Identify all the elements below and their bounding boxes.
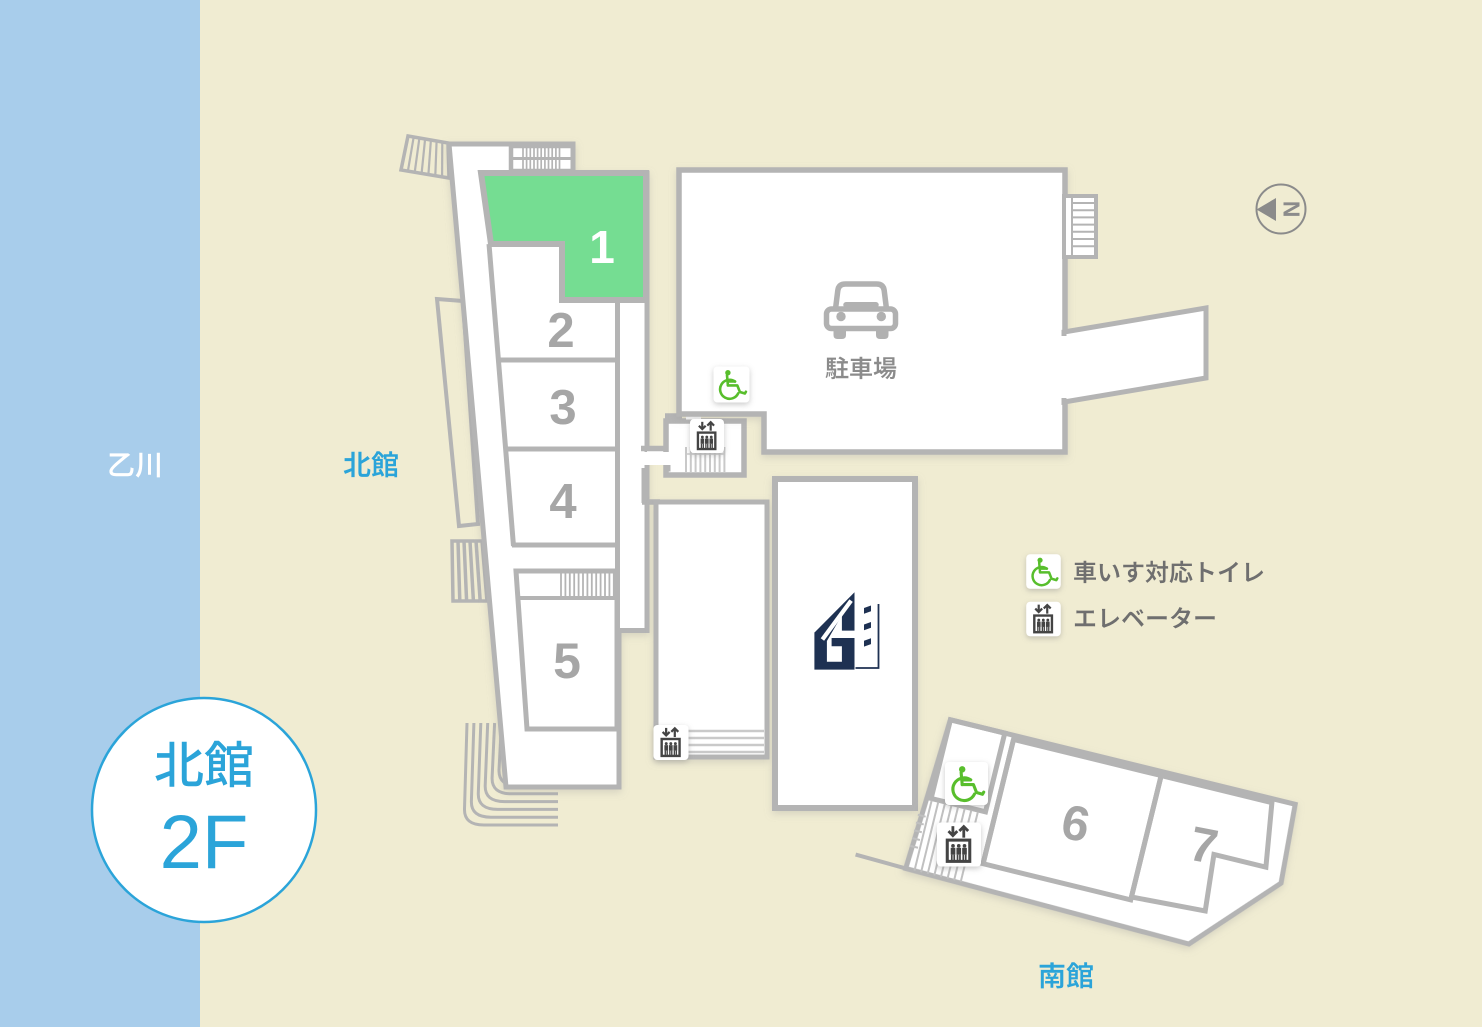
svg-text:1: 1: [589, 221, 615, 273]
svg-text:2F: 2F: [160, 800, 249, 885]
svg-text:N: N: [1279, 201, 1305, 218]
svg-text:2: 2: [547, 304, 574, 358]
svg-text:4: 4: [549, 475, 576, 529]
svg-text:5: 5: [553, 633, 581, 689]
svg-text:3: 3: [549, 381, 576, 435]
